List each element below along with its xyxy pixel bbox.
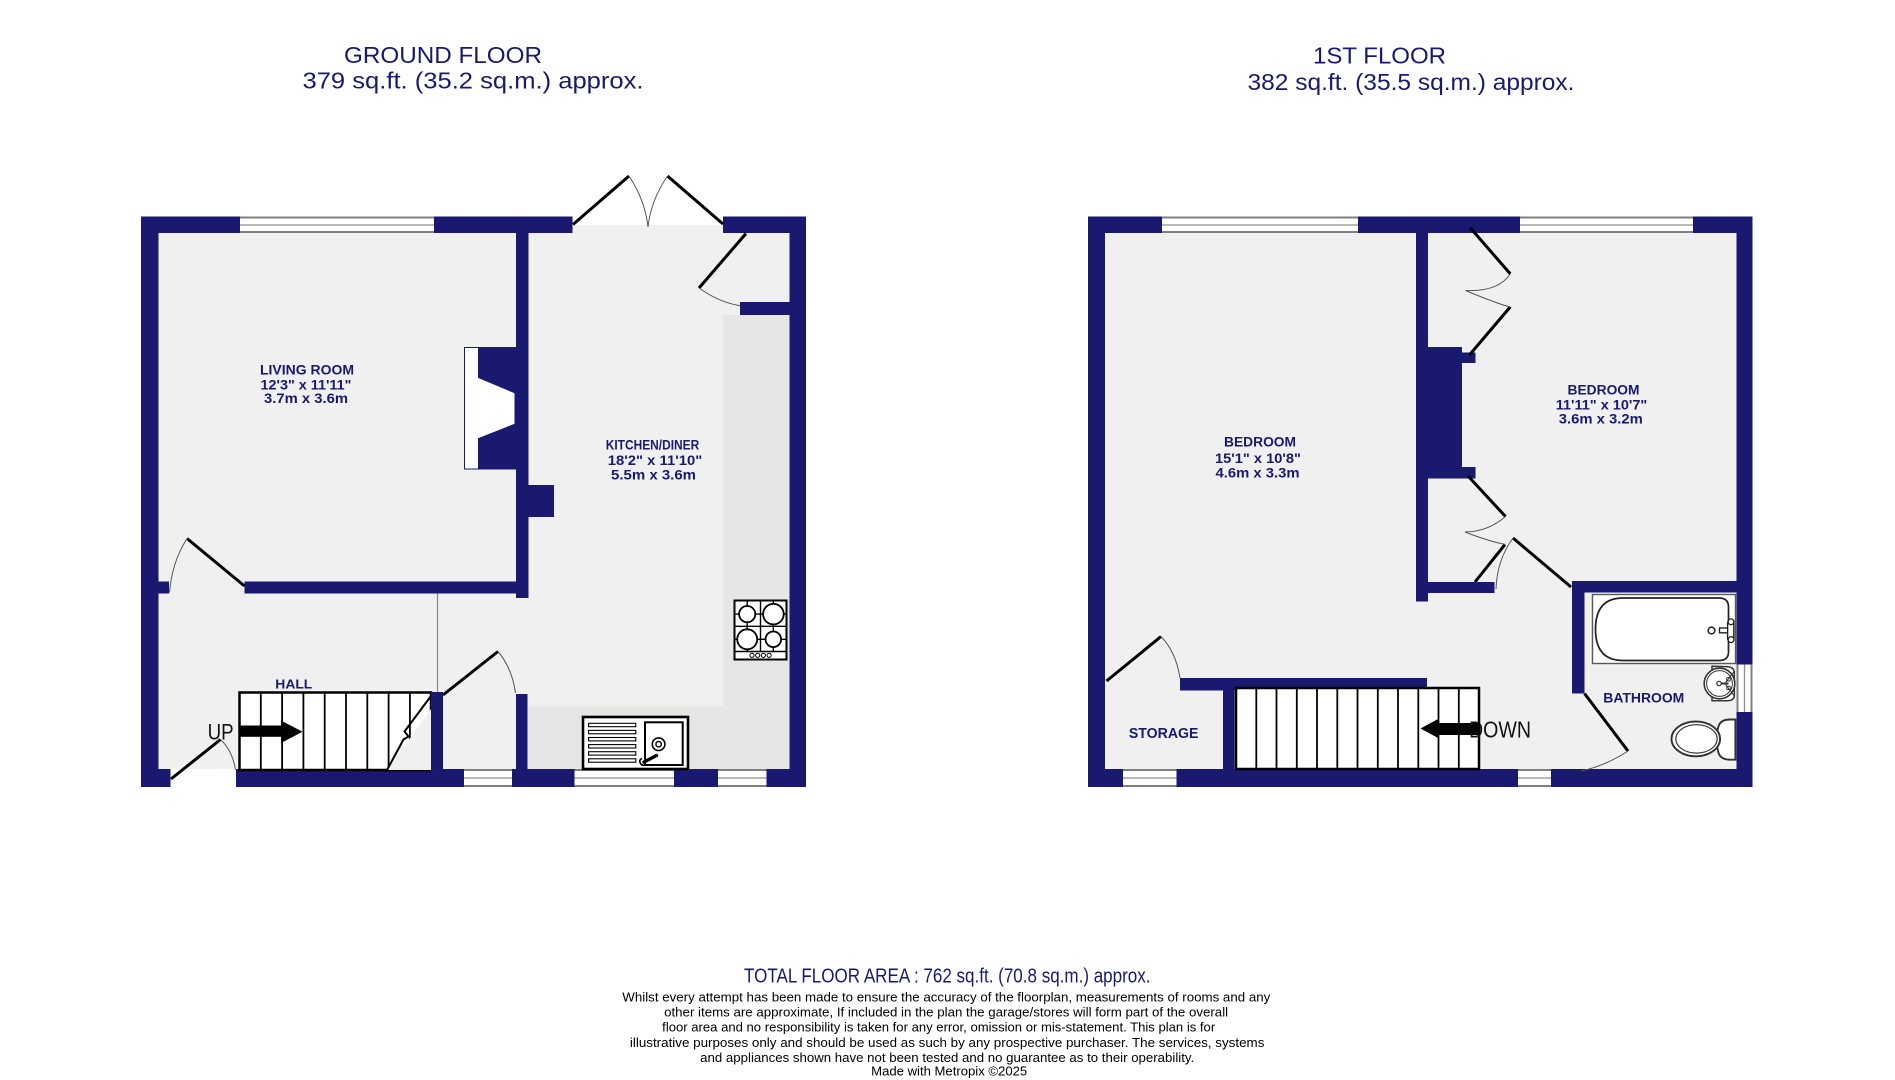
svg-text:18'2" x 11'10": 18'2" x 11'10" bbox=[608, 453, 703, 468]
svg-text:3.7m x 3.6m: 3.7m x 3.6m bbox=[264, 391, 348, 406]
svg-text:BEDROOM: BEDROOM bbox=[1568, 383, 1640, 398]
svg-text:Made with Metropix ©2025: Made with Metropix ©2025 bbox=[871, 1063, 1027, 1078]
svg-text:1ST FLOOR: 1ST FLOOR bbox=[1313, 43, 1446, 69]
svg-text:3.6m x 3.2m: 3.6m x 3.2m bbox=[1559, 411, 1643, 426]
svg-text:floor area and no responsibili: floor area and no responsibility is take… bbox=[662, 1020, 1216, 1035]
svg-text:BEDROOM: BEDROOM bbox=[1224, 435, 1296, 450]
svg-text:379 sq.ft. (35.2 sq.m.) approx: 379 sq.ft. (35.2 sq.m.) approx. bbox=[303, 68, 644, 94]
svg-text:illustrative purposes only and: illustrative purposes only and should be… bbox=[630, 1035, 1265, 1050]
svg-text:TOTAL FLOOR AREA : 762 sq.ft.: TOTAL FLOOR AREA : 762 sq.ft. (70.8 sq.m… bbox=[744, 966, 1151, 988]
svg-text:HALL: HALL bbox=[275, 677, 312, 692]
svg-text:other items are approximate, I: other items are approximate, If included… bbox=[664, 1005, 1228, 1020]
svg-text:4.6m x 3.3m: 4.6m x 3.3m bbox=[1216, 465, 1300, 480]
svg-text:BATHROOM: BATHROOM bbox=[1603, 690, 1684, 705]
svg-text:GROUND FLOOR: GROUND FLOOR bbox=[344, 42, 542, 68]
svg-text:STORAGE: STORAGE bbox=[1129, 726, 1199, 742]
svg-text:15'1" x 10'8": 15'1" x 10'8" bbox=[1215, 451, 1301, 466]
svg-text:382 sq.ft. (35.5 sq.m.) approx: 382 sq.ft. (35.5 sq.m.) approx. bbox=[1248, 69, 1575, 95]
svg-text:5.5m x 3.6m: 5.5m x 3.6m bbox=[611, 467, 696, 482]
svg-text:KITCHEN/DINER: KITCHEN/DINER bbox=[606, 437, 700, 452]
svg-text:Whilst every attempt has been: Whilst every attempt has been made to en… bbox=[622, 989, 1271, 1004]
svg-text:LIVING ROOM: LIVING ROOM bbox=[260, 363, 354, 378]
